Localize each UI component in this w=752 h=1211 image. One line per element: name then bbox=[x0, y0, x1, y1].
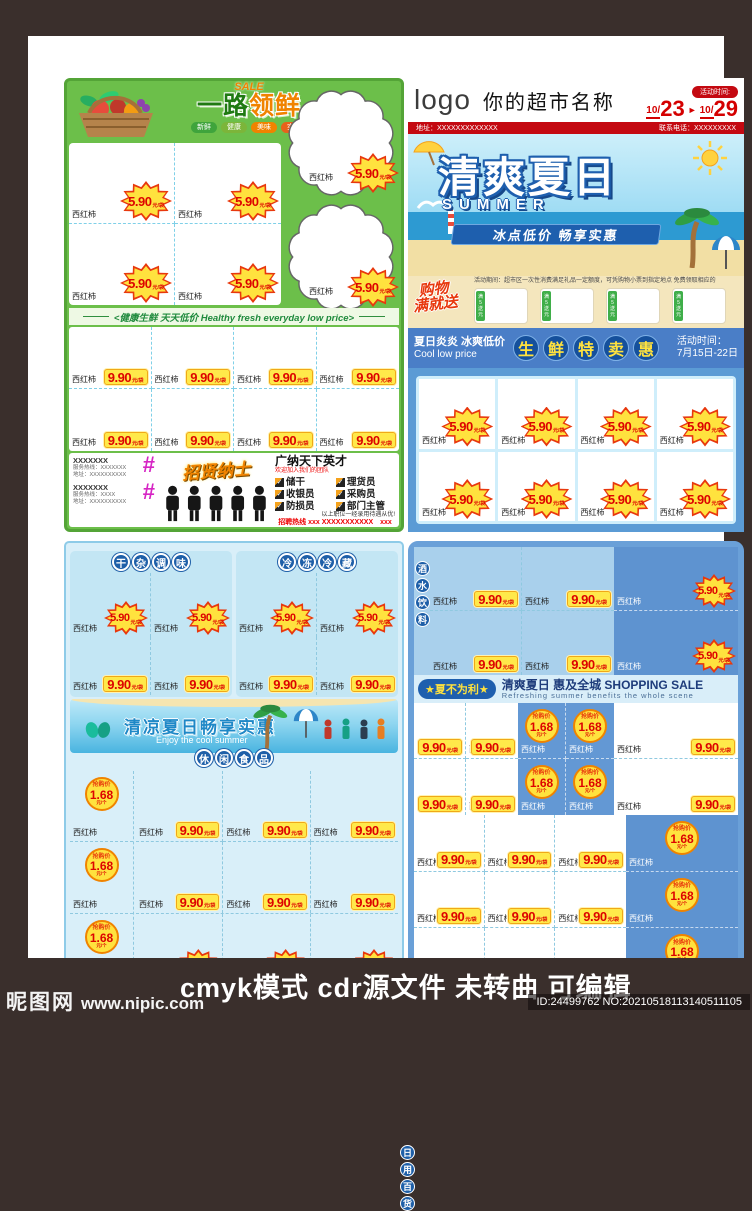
product-name: 西红柿 bbox=[73, 827, 97, 838]
hash-decoration: # bbox=[143, 454, 155, 476]
flash-price-circle: 抢购价1.68元/个 bbox=[85, 848, 119, 882]
price-tag: 9.90元/袋 bbox=[269, 432, 313, 448]
product-cell: 西红柿 9.90元/袋 bbox=[522, 547, 614, 611]
product-cell: 西红柿 9.90元/袋 bbox=[414, 759, 466, 815]
product-name: 西红柿 bbox=[139, 899, 163, 910]
flash-product-cell: 抢购价1.68元/个 西红柿 bbox=[70, 842, 133, 913]
price-tag: 9.90元/袋 bbox=[185, 676, 229, 692]
checkbox-icon: ✓ bbox=[336, 490, 345, 499]
product-name: 西红柿 bbox=[155, 374, 179, 385]
gift-threshold-tag: 满5送元 bbox=[476, 291, 485, 321]
product-name: 西红柿 bbox=[422, 507, 446, 518]
recruit-hotline: 招聘热线 xxx XXXXXXXXXXX xxx XXXXXXXXXXX bbox=[275, 519, 395, 527]
price-starburst: 5.90元/袋 bbox=[104, 601, 148, 635]
fresh-product-panel: 西红柿 5.90元/袋 西红柿 5.90元/袋 西红柿 5.90元/袋 西红柿 … bbox=[69, 143, 281, 305]
gift-section: 活动期间：超市区一次性消费满足礼品一定额度，可凭购物小票到指定地点 免费领取相应… bbox=[408, 276, 744, 328]
snacks-grid: 西红柿 9.90元/袋 西红柿 9.90元/袋 西红柿 9.90元/袋 bbox=[136, 771, 398, 985]
fresh-grid: 西红柿 9.90元/袋 西红柿 9.90元/袋 西红柿 9.90元/袋 西红柿 … bbox=[69, 327, 399, 451]
badge-health: 健康 bbox=[221, 122, 247, 133]
stock-preview-page: { "tags": { "product": "西红柿", "star_pric… bbox=[0, 0, 752, 1024]
beach-people-icons bbox=[320, 715, 390, 747]
date-range: 10/23 ► 10/29 bbox=[646, 99, 738, 119]
product-cell: 西红柿 9.90元/袋 bbox=[614, 703, 738, 759]
slippers-icon bbox=[84, 721, 112, 739]
product-name: 西红柿 bbox=[569, 744, 593, 755]
product-name: 西红柿 bbox=[73, 681, 97, 692]
rect-row: 西红柿 9.90元/袋 西红柿 9.90元/袋 bbox=[70, 637, 232, 695]
product-cell: 西红柿 9.90元/袋 bbox=[152, 327, 235, 389]
price-tag: 9.90元/袋 bbox=[474, 591, 518, 607]
product-cell: 西红柿 9.90元/袋 bbox=[311, 771, 398, 842]
checkbox-icon: ✓ bbox=[275, 502, 284, 511]
product-cell: 西红柿 9.90元/袋 bbox=[414, 703, 466, 759]
gift-threshold-tag: 满5送元 bbox=[542, 291, 551, 321]
price-starburst: 5.90元/袋 bbox=[352, 601, 396, 635]
price-tag: 9.90元/袋 bbox=[263, 894, 307, 910]
product-name: 西红柿 bbox=[154, 623, 178, 634]
price-tag: 9.90元/袋 bbox=[104, 432, 148, 448]
product-cell: 西红柿 9.90元/袋 bbox=[311, 842, 398, 913]
beach-umbrella-icon bbox=[710, 232, 742, 270]
gift-threshold-tag: 满5送元 bbox=[674, 291, 683, 321]
product-name: 西红柿 bbox=[433, 596, 457, 607]
checkbox-icon: ✓ bbox=[336, 478, 345, 487]
product-name: 西红柿 bbox=[72, 209, 96, 220]
hash-decoration: # bbox=[143, 481, 155, 503]
fresh-sale-band: 夏日炎炎 冰爽低价 Cool low price 生鲜特卖惠 活动时间： 7月1… bbox=[408, 328, 744, 368]
product-name: 西红柿 bbox=[72, 437, 96, 448]
flash-product-cell: 抢购价1.68元/个 西红柿 bbox=[518, 759, 566, 815]
price-starburst: 5.90元/袋 bbox=[521, 479, 573, 519]
quadrant-drinks-daily: 酒水饮料 西红柿 9.90元/袋 西红柿 9.90元/袋 西红柿 9.90元/袋 bbox=[408, 541, 744, 991]
product-name: 西红柿 bbox=[525, 661, 549, 672]
price-tag: 9.90元/袋 bbox=[508, 908, 552, 924]
flash-price-column: 抢购价1.68元/个 西红柿 抢购价1.68元/个 西红柿 抢购价1.68元/个… bbox=[70, 771, 134, 985]
price-tag: 9.90元/袋 bbox=[352, 432, 396, 448]
contact-block: XXXXXXX 服务热线：XXXX 地址：XXXXXXXXXX # bbox=[73, 483, 157, 506]
flash-product-cell: 抢购价1.68元/个 西红柿 bbox=[626, 815, 738, 872]
recruit-headline: 广纳天下英才 bbox=[275, 455, 395, 468]
product-cell: 西红柿 5.90元/袋 bbox=[498, 452, 574, 522]
flash-price-circle: 抢购价1.68元/个 bbox=[573, 765, 607, 799]
product-cell: 西红柿 5.90元/袋 bbox=[175, 143, 281, 224]
product-name: 西红柿 bbox=[73, 899, 97, 910]
product-name: 西红柿 bbox=[320, 437, 344, 448]
watermark: 昵图网 www.nipic.com bbox=[6, 986, 204, 1016]
product-cell: 西红柿 5.90元/袋 bbox=[578, 452, 654, 522]
price-tag: 9.90元/袋 bbox=[579, 908, 623, 924]
position-item: ✓收银员 bbox=[275, 489, 334, 500]
product-name: 西红柿 bbox=[72, 374, 96, 385]
product-cell: 西红柿 5.90元/袋 bbox=[657, 379, 733, 449]
price-starburst: 5.90元/袋 bbox=[600, 479, 652, 519]
product-cell: 西红柿 9.90元/袋 bbox=[466, 759, 518, 815]
price-tag: 9.90元/袋 bbox=[691, 796, 735, 812]
band-left-text: 夏日炎炎 冰爽低价 Cool low price bbox=[414, 336, 505, 361]
quadrant-fresh-green: SALE 一路领鲜 新鲜 健康 美味 实惠 西红柿 5.90元/袋 bbox=[64, 78, 404, 532]
price-starburst: 5.90元/袋 bbox=[270, 601, 314, 635]
drinks-panel: 酒水饮料 西红柿 9.90元/袋 西红柿 9.90元/袋 西红柿 9.90元/袋 bbox=[414, 547, 614, 675]
price-tag: 9.90元/袋 bbox=[471, 796, 515, 812]
household-section: 西红柿 9.90元/袋 西红柿 9.90元/袋 西红柿 9.90元/袋 西红柿 … bbox=[414, 703, 738, 815]
price-tag: 9.90元/袋 bbox=[352, 369, 396, 385]
gift-rules-note: 活动期间：超市区一次性消费满足礼品一定额度，可凭购物小票到指定地点 免费领取相应… bbox=[474, 278, 736, 285]
product-cell: 西红柿 9.90元/袋 bbox=[522, 611, 614, 675]
price-tag: 9.90元/袋 bbox=[567, 656, 611, 672]
store-phone: 联系电话：XXXXXXXXX bbox=[659, 123, 736, 133]
product-name: 西红柿 bbox=[239, 623, 263, 634]
price-tag: 9.90元/袋 bbox=[567, 591, 611, 607]
product-cell: 西红柿 9.90元/袋 bbox=[236, 637, 317, 695]
star-cells: 西红柿 5.90元/袋 西红柿 5.90元/袋 bbox=[614, 547, 738, 675]
vegetable-basket-image bbox=[69, 83, 163, 141]
address-strip: 地址：XXXXXXXXXXXXX 联系电话：XXXXXXXXX bbox=[408, 122, 744, 134]
product-cell: 西红柿 9.90元/袋 bbox=[223, 771, 310, 842]
product-cell: 西红柿 9.90元/袋 bbox=[152, 389, 235, 451]
product-cell: 西红柿 9.90元/袋 bbox=[555, 815, 626, 872]
band-line-right bbox=[359, 316, 385, 317]
price-tag: 9.90元/袋 bbox=[186, 369, 230, 385]
recruit-title: 招贤纳士 bbox=[181, 455, 251, 485]
price-tag: 9.90元/袋 bbox=[269, 676, 313, 692]
product-name: 西红柿 bbox=[226, 899, 250, 910]
product-name: 西红柿 bbox=[73, 623, 97, 634]
footer-bar: cmyk模式 cdr源文件 未转曲 可编辑 昵图网 www.nipic.com … bbox=[0, 958, 752, 1024]
price-tag: 9.90元/袋 bbox=[579, 852, 623, 868]
cloud-product-frames: 西红柿 5.90元/袋 西红柿 5.90元/袋 bbox=[283, 85, 399, 315]
drinks-star-column: 西红柿 5.90元/袋 西红柿 5.90元/袋 bbox=[614, 547, 738, 675]
cloud-product-frame: 西红柿 5.90元/袋 bbox=[283, 199, 399, 313]
product-cell: 西红柿 9.90元/袋 bbox=[234, 327, 317, 389]
price-starburst: 5.90元/袋 bbox=[186, 601, 230, 635]
product-cell: 西红柿 9.90元/袋 bbox=[485, 815, 556, 872]
product-name: 西红柿 bbox=[617, 661, 641, 672]
product-cell: 西红柿 9.90元/袋 bbox=[317, 637, 398, 695]
flyer-paper: SALE 一路领鲜 新鲜 健康 美味 实惠 西红柿 5.90元/袋 bbox=[28, 36, 724, 958]
product-cell: 西红柿 9.90元/袋 bbox=[69, 389, 152, 451]
badge-tasty: 美味 bbox=[251, 122, 277, 133]
recruit-positions-block: 广纳天下英才 欢迎加入我们的团队 ✓储干 ✓理货员 ✓收银员 ✓采购员 ✓防损员… bbox=[273, 453, 399, 527]
rect-cells: 西红柿 9.90元/袋 西红柿 9.90元/袋 西红柿 9.90元/袋 西红柿 … bbox=[414, 703, 518, 815]
price-starburst: 5.90元/袋 bbox=[692, 639, 736, 673]
recruit-subline: 欢迎加入我们的团队 bbox=[275, 468, 395, 475]
gift-box: 满5送元 bbox=[474, 288, 528, 324]
flash-price-circle: 抢购价1.68元/个 bbox=[525, 709, 559, 743]
summer-banner: 清爽夏日 SUMMER 冰点低价 畅享实惠 bbox=[408, 134, 744, 276]
price-tag: 9.90元/袋 bbox=[176, 894, 220, 910]
price-starburst: 5.90元/袋 bbox=[441, 479, 493, 519]
flash-cells: 抢购价1.68元/个 西红柿 抢购价1.68元/个 西红柿 抢购价1.68元/个… bbox=[70, 771, 133, 985]
price-tag: 9.90元/袋 bbox=[418, 739, 462, 755]
price-tag: 9.90元/袋 bbox=[508, 852, 552, 868]
drinks-section: 酒水饮料 西红柿 9.90元/袋 西红柿 9.90元/袋 西红柿 9.90元/袋 bbox=[414, 547, 738, 675]
product-cell: 西红柿 9.90元/袋 bbox=[223, 842, 310, 913]
section-dry-seasoning: 干杂调味 西红柿 5.90元/袋 西红柿 5.90元/袋 西红柿 9.90元/袋 bbox=[70, 551, 232, 697]
price-tag: 9.90元/袋 bbox=[103, 676, 147, 692]
product-cell: 西红柿 9.90元/袋 bbox=[70, 637, 151, 695]
healthy-fresh-band: <健康生鲜 天天低价 Healthy fresh everyday low pr… bbox=[69, 308, 399, 325]
rect-row: 西红柿 9.90元/袋 西红柿 9.90元/袋 bbox=[236, 637, 398, 695]
position-item: ✓理货员 bbox=[336, 477, 395, 488]
product-cell: 西红柿 9.90元/袋 bbox=[485, 872, 556, 929]
product-name: 西红柿 bbox=[178, 209, 202, 220]
product-cell: 西红柿 5.90元/袋 bbox=[419, 379, 495, 449]
gift-threshold-tag: 满5送元 bbox=[608, 291, 617, 321]
product-name: 西红柿 bbox=[629, 913, 653, 924]
quadrant-dry-frozen: 干杂调味 西红柿 5.90元/袋 西红柿 5.90元/袋 西红柿 9.90元/袋 bbox=[64, 541, 404, 991]
section-badge-frozen-chilled: 冷冻冷藏 bbox=[278, 553, 356, 571]
band-pill: ★夏不为利★ bbox=[418, 679, 496, 699]
product-cell: 西红柿 5.90元/袋 bbox=[175, 224, 281, 305]
store-header: logo 你的超市名称 活动时间: 10/23 ► 10/29 bbox=[408, 78, 744, 122]
product-cell: 西红柿 9.90元/袋 bbox=[414, 872, 485, 929]
price-starburst: 5.90元/袋 bbox=[120, 263, 172, 303]
flash-price-circle: 抢购价1.68元/个 bbox=[573, 709, 607, 743]
price-starburst: 5.90元/袋 bbox=[521, 407, 573, 447]
product-cell: 西红柿 9.90元/袋 bbox=[234, 389, 317, 451]
badge-fresh: 新鲜 bbox=[191, 122, 217, 133]
flash-product-cell: 抢购价1.68元/个 西红柿 bbox=[626, 872, 738, 929]
product-cell: 西红柿 9.90元/袋 bbox=[414, 815, 485, 872]
product-name: 西红柿 bbox=[525, 596, 549, 607]
band-right-text: 活动时间： 7月15日-22日 bbox=[677, 336, 738, 360]
rect-cells: 西红柿 9.90元/袋 西红柿 9.90元/袋 西红柿 9.90元/袋 bbox=[136, 771, 398, 913]
price-tag: 9.90元/袋 bbox=[351, 822, 395, 838]
flash-price-circle: 抢购价1.68元/个 bbox=[85, 920, 119, 954]
price-starburst: 5.90元/袋 bbox=[120, 181, 172, 221]
store-name: 你的超市名称 bbox=[483, 86, 615, 115]
product-cell: 西红柿 5.90元/袋 bbox=[317, 573, 398, 637]
section-badge-dry-seasoning: 干杂调味 bbox=[112, 553, 190, 571]
flash-price-circle: 抢购价1.68元/个 bbox=[525, 765, 559, 799]
flash-price-circle: 抢购价1.68元/个 bbox=[665, 821, 699, 855]
product-name: 西红柿 bbox=[314, 827, 338, 838]
product-cell: 西红柿 5.90元/袋 bbox=[236, 573, 317, 637]
product-cell: 西红柿 5.90元/袋 bbox=[657, 452, 733, 522]
product-cell: 西红柿 5.90元/袋 bbox=[578, 379, 654, 449]
flash-price-circle: 抢购价1.68元/个 bbox=[665, 878, 699, 912]
price-tag: 9.90元/袋 bbox=[263, 822, 307, 838]
product-cell: 西红柿 9.90元/袋 bbox=[151, 637, 232, 695]
gift-box: 满5送元 bbox=[606, 288, 660, 324]
product-cell: 西红柿 5.90元/袋 bbox=[70, 573, 151, 637]
price-tag: 9.90元/袋 bbox=[186, 432, 230, 448]
product-name: 西红柿 bbox=[226, 827, 250, 838]
product-name: 西红柿 bbox=[72, 291, 96, 302]
product-cell: 西红柿 5.90元/袋 bbox=[69, 143, 175, 224]
product-cell: 西红柿 5.90元/袋 bbox=[419, 452, 495, 522]
flash-product-cell: 抢购价1.68元/个 西红柿 bbox=[566, 703, 614, 759]
product-name: 西红柿 bbox=[617, 744, 641, 755]
product-name: 西红柿 bbox=[617, 596, 641, 607]
watermark-url: www.nipic.com bbox=[81, 994, 204, 1014]
price-tag: 9.90元/袋 bbox=[269, 369, 313, 385]
product-cell: 西红柿 9.90元/袋 bbox=[466, 703, 518, 759]
product-name: 西红柿 bbox=[433, 661, 457, 672]
product-name: 西红柿 bbox=[501, 435, 525, 446]
recruitment-section: XXXXXXX 服务热线：XXXXXXX 地址：XXXXXXXXXX # XXX… bbox=[69, 453, 399, 527]
gift-box: 满5送元 bbox=[540, 288, 594, 324]
band-line-left bbox=[83, 316, 109, 317]
sun-icon bbox=[692, 140, 728, 176]
price-tag: 9.90元/袋 bbox=[691, 739, 735, 755]
product-name: 西红柿 bbox=[629, 857, 653, 868]
product-cell: 西红柿 5.90元/袋 bbox=[614, 547, 738, 611]
image-id-text: ID:24499762 NO:20210518113140511105 bbox=[528, 994, 750, 1010]
product-name: 西红柿 bbox=[139, 827, 163, 838]
product-name: 西红柿 bbox=[237, 374, 261, 385]
flash-product-cell: 抢购价1.68元/个 西红柿 bbox=[70, 771, 133, 842]
checkbox-icon: ✓ bbox=[336, 502, 345, 511]
product-name: 西红柿 bbox=[660, 435, 684, 446]
product-name: 西红柿 bbox=[569, 801, 593, 812]
product-name: 西红柿 bbox=[521, 744, 545, 755]
watermark-site: 昵图网 bbox=[6, 986, 75, 1016]
product-cell: 西红柿 9.90元/袋 bbox=[430, 611, 522, 675]
product-name: 西红柿 bbox=[320, 681, 344, 692]
arrow-icon: ► bbox=[688, 105, 697, 115]
product-cell: 西红柿 5.90元/袋 bbox=[614, 611, 738, 675]
section-badge-snacks: 休闲食品 bbox=[195, 749, 273, 767]
section-frozen-chilled: 冷冻冷藏 西红柿 5.90元/袋 西红柿 5.90元/袋 西红柿 9.90元/袋 bbox=[236, 551, 398, 697]
summer-grid: 西红柿 5.90元/袋 西红柿 5.90元/袋 西红柿 5.90元/袋 西红柿 … bbox=[416, 376, 736, 524]
flash-product-cell: 抢购价1.68元/个 西红柿 bbox=[518, 703, 566, 759]
price-starburst: 5.90元/袋 bbox=[679, 479, 731, 519]
sand-wave bbox=[70, 699, 398, 707]
summer-grid-panel: 西红柿 5.90元/袋 西红柿 5.90元/袋 西红柿 5.90元/袋 西红柿 … bbox=[408, 368, 744, 532]
band-title: 清爽夏日 惠及全城 SHOPPING SALE bbox=[502, 679, 703, 692]
price-tag: 9.90元/袋 bbox=[104, 369, 148, 385]
price-tag: 9.90元/袋 bbox=[437, 908, 481, 924]
product-name: 西红柿 bbox=[155, 437, 179, 448]
product-name: 西红柿 bbox=[309, 286, 333, 297]
section-badge-daily-goods: 日用百货 bbox=[400, 1145, 415, 1211]
contact-block: XXXXXXX 服务热线：XXXXXXX 地址：XXXXXXXXXX # bbox=[73, 456, 157, 479]
position-item: ✓储干 bbox=[275, 477, 334, 488]
flash-product-cell: 抢购价1.68元/个 西红柿 bbox=[566, 759, 614, 815]
gift-boxes: 满5送元 满5送元 满5送元 满5送元 bbox=[474, 288, 726, 324]
recruit-contacts: XXXXXXX 服务热线：XXXXXXX 地址：XXXXXXXXXX # XXX… bbox=[69, 453, 159, 527]
store-address: 地址：XXXXXXXXXXXXX bbox=[416, 123, 498, 133]
product-name: 西红柿 bbox=[320, 374, 344, 385]
banner-ribbon: 冰点低价 畅享实惠 bbox=[451, 224, 662, 245]
fresh-panel-grid: 西红柿 5.90元/袋 西红柿 5.90元/袋 西红柿 5.90元/袋 西红柿 … bbox=[69, 143, 281, 305]
price-tag: 9.90元/袋 bbox=[351, 676, 395, 692]
beach-band-subtitle: Enjoy the cool summer bbox=[156, 735, 248, 745]
checkbox-icon: ✓ bbox=[275, 490, 284, 499]
fresh-grid-panel: 西红柿 9.90元/袋 西红柿 9.90元/袋 西红柿 9.90元/袋 西红柿 … bbox=[69, 327, 399, 451]
product-name: 西红柿 bbox=[314, 899, 338, 910]
price-tag: 9.90元/袋 bbox=[351, 894, 395, 910]
checkbox-icon: ✓ bbox=[275, 478, 284, 487]
shopping-sale-band: ★夏不为利★ 清爽夏日 惠及全城 SHOPPING SALE Refreshin… bbox=[414, 675, 738, 703]
recruit-title-block: 招贤纳士 bbox=[159, 453, 273, 527]
recruit-note: 以上职位一经录用待遇从优! bbox=[275, 512, 395, 519]
product-name: 西红柿 bbox=[581, 435, 605, 446]
price-starburst: 5.90元/袋 bbox=[227, 263, 279, 303]
cool-summer-beach-band: 清凉夏日畅享实惠 Enjoy the cool summer bbox=[70, 699, 398, 753]
product-name: 西红柿 bbox=[178, 291, 202, 302]
price-starburst: 5.90元/袋 bbox=[692, 574, 736, 608]
banner-subtitle: SUMMER bbox=[442, 196, 551, 213]
product-name: 西红柿 bbox=[581, 507, 605, 518]
beach-umbrella-icon bbox=[292, 705, 320, 739]
price-starburst: 5.90元/袋 bbox=[600, 407, 652, 447]
product-name: 西红柿 bbox=[239, 681, 263, 692]
positions-list: ✓储干 ✓理货员 ✓收银员 ✓采购员 ✓防损员 ✓部门主管 bbox=[275, 477, 395, 512]
product-cell: 西红柿 9.90元/袋 bbox=[555, 872, 626, 929]
product-name: 西红柿 bbox=[501, 507, 525, 518]
price-tag: 9.90元/袋 bbox=[474, 656, 518, 672]
product-name: 西红柿 bbox=[660, 507, 684, 518]
cloud-product-frame: 西红柿 5.90元/袋 bbox=[283, 85, 399, 199]
flash-cells: 抢购价1.68元/个 西红柿 抢购价1.68元/个 西红柿 抢购价1.68元/个… bbox=[518, 703, 614, 815]
product-cell: 西红柿 9.90元/袋 bbox=[430, 547, 522, 611]
product-cell: 西红柿 9.90元/袋 bbox=[317, 389, 400, 451]
section-badge-drinks: 酒水饮料 bbox=[415, 561, 430, 627]
product-name: 西红柿 bbox=[237, 437, 261, 448]
price-tag: 9.90元/袋 bbox=[418, 796, 462, 812]
price-tag: 9.90元/袋 bbox=[176, 822, 220, 838]
star-row: 西红柿 5.90元/袋 西红柿 5.90元/袋 bbox=[70, 573, 232, 637]
price-tag: 9.90元/袋 bbox=[437, 852, 481, 868]
price-tag: 9.90元/袋 bbox=[471, 739, 515, 755]
product-cell: 西红柿 9.90元/袋 bbox=[317, 327, 400, 389]
product-cell: 西红柿 9.90元/袋 bbox=[136, 842, 223, 913]
price-starburst: 5.90元/袋 bbox=[227, 181, 279, 221]
product-cell: 西红柿 5.90元/袋 bbox=[69, 224, 175, 305]
product-name: 西红柿 bbox=[422, 435, 446, 446]
product-cell: 西红柿 9.90元/袋 bbox=[69, 327, 152, 389]
product-cell: 西红柿 9.90元/袋 bbox=[614, 759, 738, 815]
snacks-grid-section: 抢购价1.68元/个 西红柿 抢购价1.68元/个 西红柿 抢购价1.68元/个… bbox=[70, 771, 398, 985]
band-text: <健康生鲜 天天低价 Healthy fresh everyday low pr… bbox=[114, 310, 354, 324]
product-name: 西红柿 bbox=[154, 681, 178, 692]
position-item: ✓防损员 bbox=[275, 501, 334, 512]
product-name: 西红柿 bbox=[320, 623, 344, 634]
fresh-sale-circles: 生鲜特卖惠 bbox=[513, 335, 659, 361]
store-logo: logo bbox=[414, 84, 471, 116]
flash-price-circle: 抢购价1.68元/个 bbox=[85, 777, 119, 811]
rect-cells: 西红柿 9.90元/袋 西红柿 9.90元/袋 西红柿 9.90元/袋 bbox=[430, 547, 614, 675]
product-cell: 西红柿 5.90元/袋 bbox=[498, 379, 574, 449]
gift-box: 满5送元 bbox=[672, 288, 726, 324]
star-row: 西红柿 5.90元/袋 西红柿 5.90元/袋 bbox=[236, 573, 398, 637]
price-starburst: 5.90元/袋 bbox=[679, 407, 731, 447]
product-name: 西红柿 bbox=[309, 172, 333, 183]
band-subtitle: Refreshing summer benefits the whole sce… bbox=[502, 692, 703, 700]
people-silhouettes bbox=[161, 484, 271, 522]
price-starburst: 5.90元/袋 bbox=[441, 407, 493, 447]
product-cell: 西红柿 9.90元/袋 bbox=[136, 771, 223, 842]
palm-tree-icon bbox=[248, 701, 288, 753]
rect-cells: 西红柿 9.90元/袋 西红柿 9.90元/袋 bbox=[614, 703, 738, 815]
product-cell: 西红柿 5.90元/袋 bbox=[151, 573, 232, 637]
gift-script-title: 购物 满就送 bbox=[410, 279, 458, 314]
product-name: 西红柿 bbox=[617, 801, 641, 812]
activity-dates: 活动时间: 10/23 ► 10/29 bbox=[646, 81, 738, 119]
position-item: ✓采购员 bbox=[336, 489, 395, 500]
product-name: 西红柿 bbox=[521, 801, 545, 812]
position-item: ✓部门主管 bbox=[336, 501, 395, 512]
quadrant-summer: logo 你的超市名称 活动时间: 10/23 ► 10/29 地址：XXXXX… bbox=[408, 78, 744, 532]
